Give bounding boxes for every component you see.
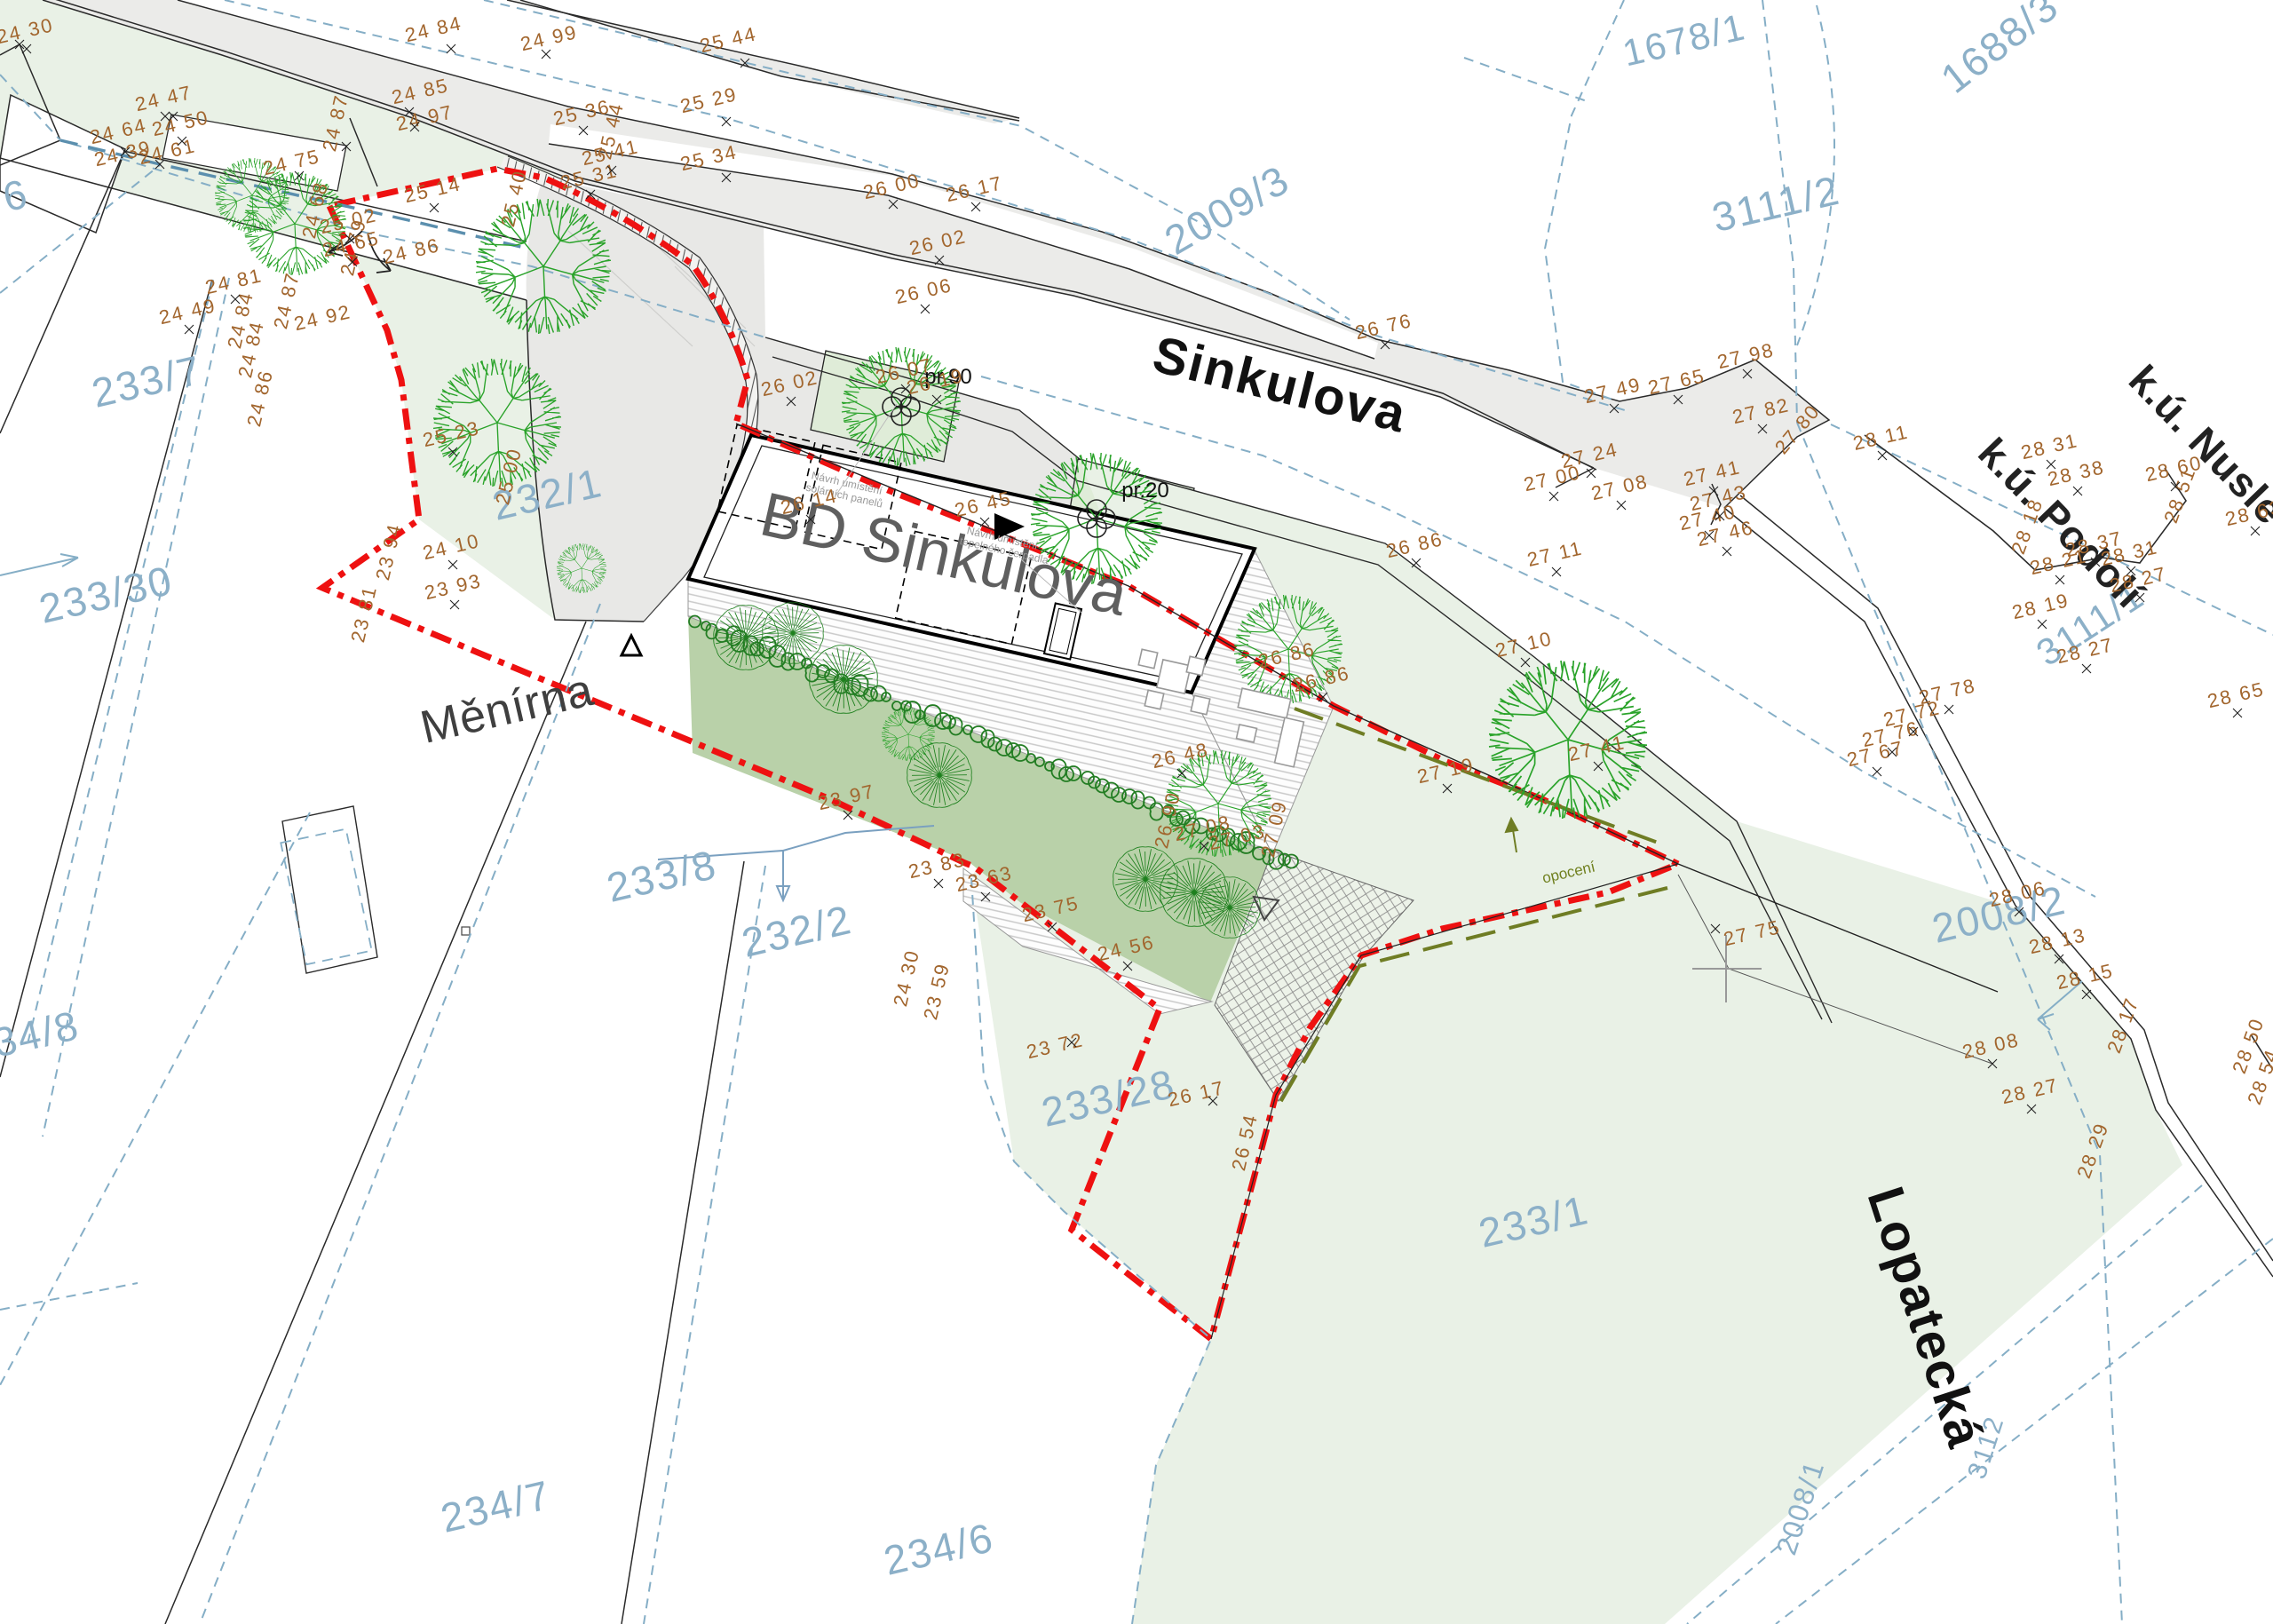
svg-text:pr.20: pr.20: [1121, 479, 1168, 503]
